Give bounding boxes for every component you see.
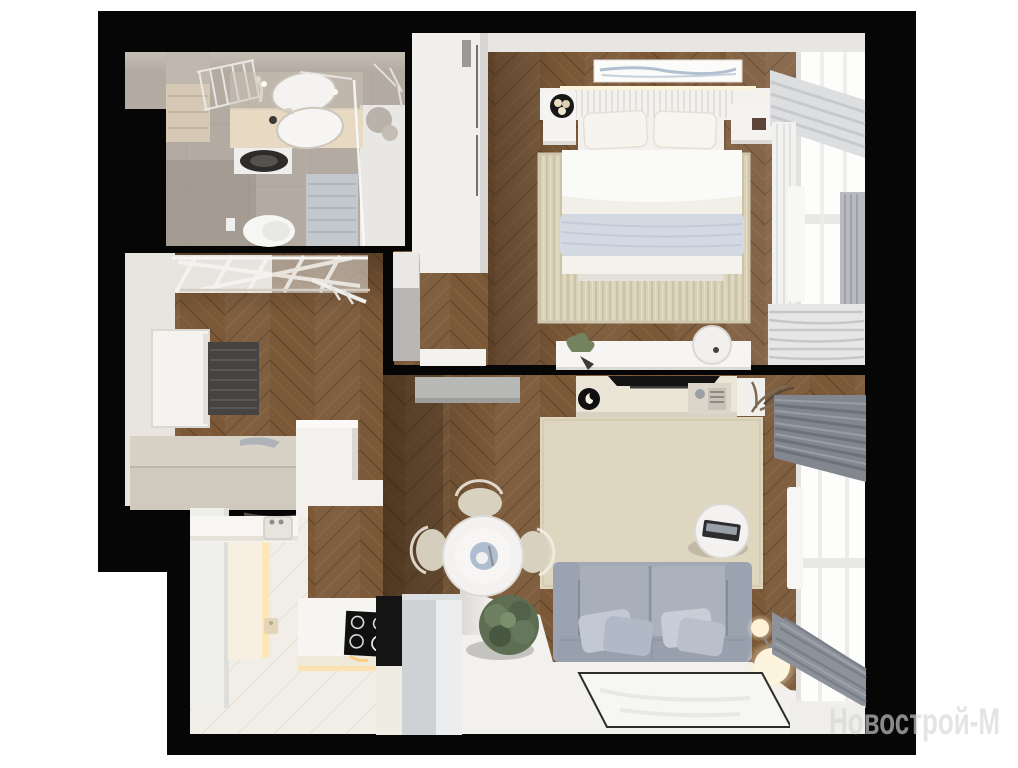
svg-text:Новострой-М: Новострой-М bbox=[829, 701, 1000, 742]
